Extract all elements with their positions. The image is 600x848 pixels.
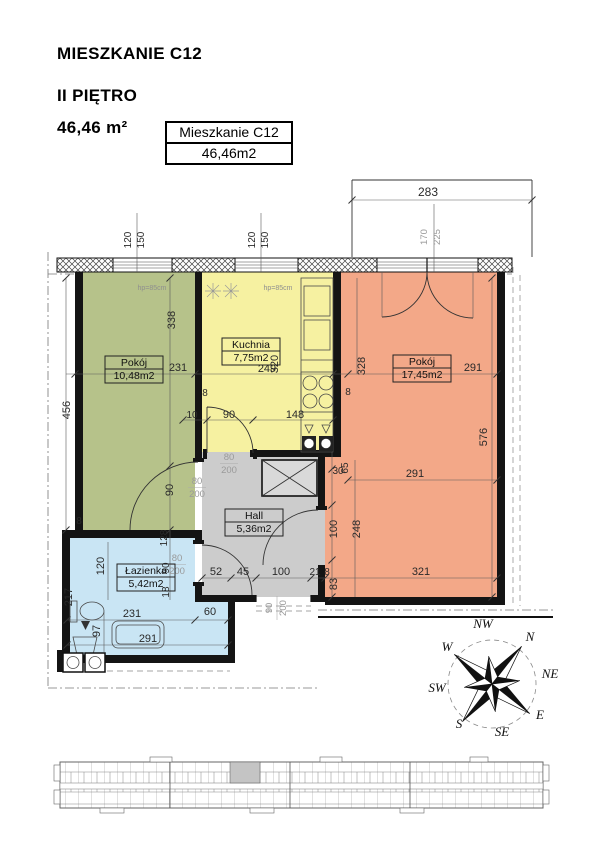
- dimension-label: 100: [328, 520, 340, 538]
- dimension-label: 217: [63, 588, 75, 606]
- dimension-label: 97: [91, 625, 103, 637]
- dimension-label: 120: [95, 557, 107, 575]
- dimension-label: 100: [272, 566, 290, 578]
- dimension-label: 248: [351, 520, 363, 538]
- compass-label-w: W: [442, 639, 454, 654]
- shaft: [262, 460, 317, 496]
- door-size-label: 80: [192, 476, 203, 487]
- dimension-label: 576: [478, 428, 490, 446]
- dimension-label: 21: [309, 567, 321, 578]
- dimension-label: 45: [237, 566, 249, 578]
- dimension-label: 150: [260, 231, 271, 248]
- dimension-label: 8: [76, 516, 82, 527]
- room-green-fill: [75, 272, 195, 530]
- dimension-label: 291: [406, 468, 424, 480]
- dimension-label: 291: [139, 633, 157, 645]
- highlighted-unit: [230, 762, 260, 783]
- compass-label-s: S: [456, 716, 463, 731]
- dimension-label: 8: [202, 388, 208, 399]
- window-1: [113, 258, 172, 272]
- dimension-label: 225: [432, 229, 443, 245]
- svg-text:Pokój: Pokój: [409, 356, 435, 368]
- svg-text:17,45m2: 17,45m2: [402, 369, 443, 381]
- floor-plan-page: MIESZKANIE C12 II PIĘTRO 46,46 m² Mieszk…: [0, 0, 600, 848]
- dimension-label: 60: [204, 606, 216, 618]
- dimension-label: 150: [136, 231, 147, 248]
- svg-text:5,42m2: 5,42m2: [128, 578, 163, 590]
- dimension-label: 148: [286, 409, 304, 421]
- dimension-label: 90: [164, 484, 176, 496]
- door-size-label: 80: [224, 452, 235, 463]
- svg-text:Kuchnia: Kuchnia: [232, 339, 270, 351]
- dimension-label: 83: [328, 578, 340, 590]
- compass-label-n: N: [525, 629, 536, 644]
- dimension-label: 128: [159, 529, 170, 546]
- dimension-label: 120: [247, 231, 258, 248]
- dimension-label: 291: [464, 362, 482, 374]
- svg-text:Hall: Hall: [245, 510, 263, 522]
- compass-label-se: SE: [495, 724, 510, 739]
- dimension-label: 52: [210, 566, 222, 578]
- compass-label-sw: SW: [428, 680, 447, 695]
- compass-label-nw: NW: [472, 616, 494, 631]
- dimension-label: 65: [340, 462, 351, 474]
- dimension-label: 231: [169, 362, 187, 374]
- door-size-label: 200: [221, 465, 237, 476]
- svg-text:Pokój: Pokój: [121, 357, 147, 369]
- dimension-label: 456: [61, 401, 73, 419]
- sill-height-label: hp=85cm: [138, 285, 167, 292]
- dimension-label: 10: [186, 410, 198, 421]
- svg-text:Łazienka: Łazienka: [125, 565, 167, 577]
- compass-label-ne: NE: [541, 666, 559, 681]
- window-2: [235, 258, 298, 272]
- entry-door-size-label: 200: [278, 600, 289, 616]
- room-living-fill: [325, 272, 497, 600]
- dimension-label: 8: [324, 567, 330, 578]
- dimension-label: 120: [123, 231, 134, 248]
- building-overview: [54, 757, 549, 813]
- dimension-label: 321: [412, 566, 430, 578]
- entry-door-size-label: 90: [264, 603, 275, 614]
- dimension-label: 283: [418, 185, 438, 199]
- dimension-label: 338: [166, 311, 178, 329]
- dimension-label: 328: [356, 357, 368, 375]
- floor-plan-drawing: 283 170 225 120 150 120 150 hp=85cm hp=8…: [0, 0, 600, 848]
- svg-text:7,75m2: 7,75m2: [233, 352, 268, 364]
- compass-label-e: E: [535, 707, 544, 722]
- dimension-label: 231: [123, 608, 141, 620]
- door-size-label: 80: [172, 553, 183, 564]
- dimension-label: 8: [345, 387, 351, 398]
- compass-rose: N NE E SE S SW W NW: [425, 616, 560, 751]
- door-size-label: 200: [169, 566, 185, 577]
- dimension-label: 170: [419, 229, 430, 245]
- sill-height-label: hp=85cm: [264, 285, 293, 292]
- svg-text:5,36m2: 5,36m2: [236, 523, 271, 535]
- svg-text:10,48m2: 10,48m2: [114, 370, 155, 382]
- dimension-label: 90: [223, 409, 235, 421]
- door-size-label: 200: [189, 489, 205, 500]
- dimension-label: 320: [269, 355, 281, 373]
